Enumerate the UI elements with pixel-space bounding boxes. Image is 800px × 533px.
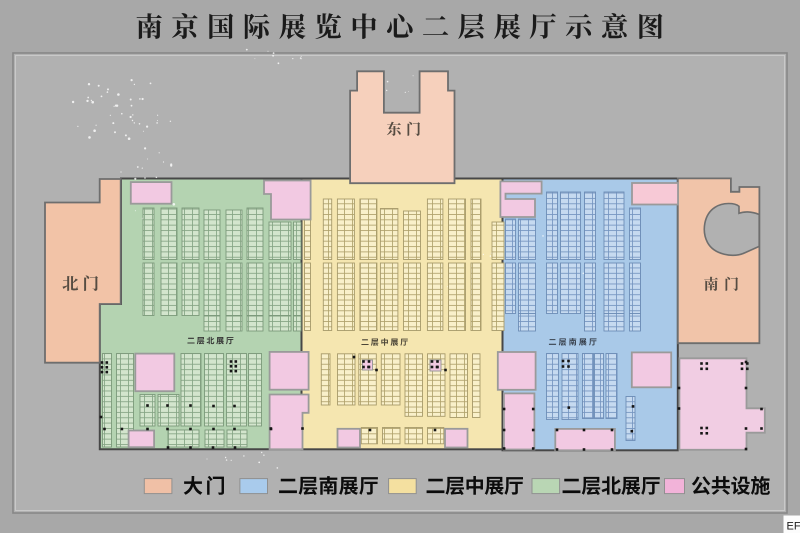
svg-text:EF: EF — [787, 521, 800, 533]
